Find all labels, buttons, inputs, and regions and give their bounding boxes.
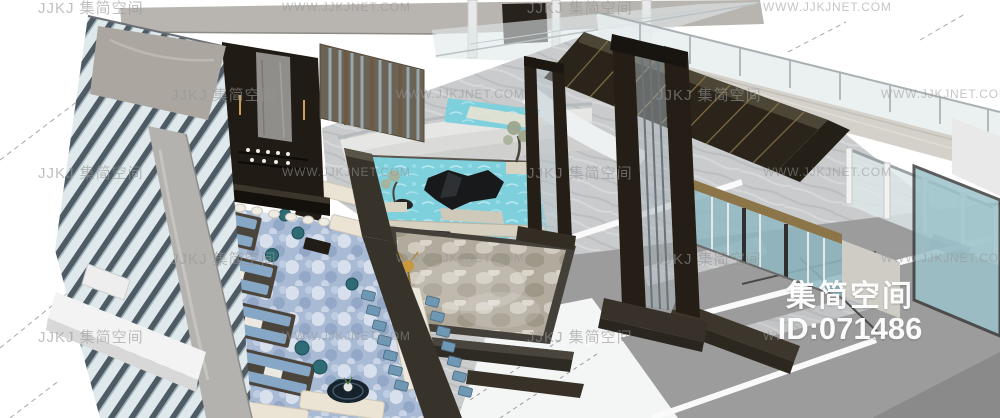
brand-watermark: 集简空间 ID:071486 bbox=[762, 281, 938, 346]
brand-watermark-name: 集简空间 bbox=[762, 281, 938, 313]
render-canvas: JJKJ 集简空间WWW.JJKJNET.COMJJKJ 集简空间WWW.JJK… bbox=[0, 0, 1000, 418]
scene-render bbox=[0, 0, 1000, 418]
brand-watermark-id: ID:071486 bbox=[762, 313, 938, 346]
